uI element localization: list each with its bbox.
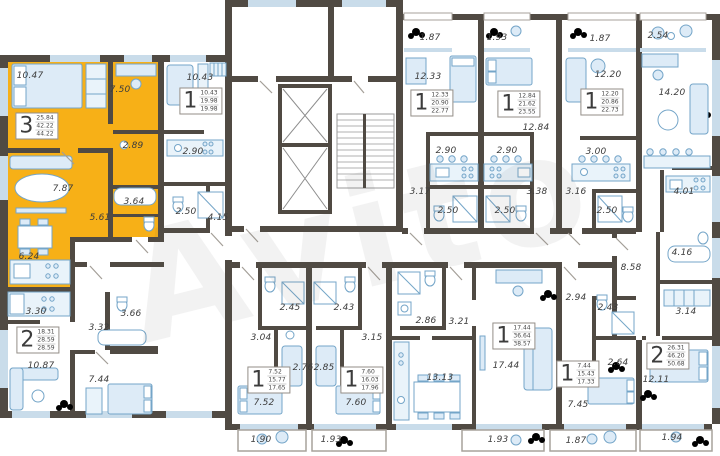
desk-icon [642, 54, 678, 67]
floor-plan: 10.477.502.897.873.645.616.243.303.663.3… [0, 0, 720, 456]
furniture-unit-1-f [314, 277, 380, 447]
washing-machine-icon [398, 302, 411, 315]
sofa-icon [566, 58, 586, 102]
balcony-chair-icon [587, 434, 597, 444]
elevator-icon [283, 148, 327, 209]
sofa-icon [10, 156, 72, 169]
armchair-icon [591, 59, 605, 73]
balcony-chair-icon [604, 431, 616, 443]
wardrobe-icon [86, 64, 106, 108]
furniture-unit-1-c [484, 26, 532, 222]
sofa-icon [167, 65, 193, 105]
furniture-unit-1-e [238, 277, 304, 444]
desk-icon [496, 270, 542, 283]
table-icon [18, 226, 52, 248]
wardrobe-icon [86, 388, 102, 414]
balcony-chair-icon [652, 27, 664, 39]
ac-unit-icon [210, 63, 226, 76]
bathtub-icon [98, 330, 146, 345]
sofa-icon [316, 346, 336, 386]
stairs-icon [337, 114, 394, 188]
desk-icon [116, 64, 156, 76]
furniture-unit-2-corner [640, 25, 711, 447]
sink-icon [120, 141, 128, 149]
elevator-icon [283, 89, 327, 142]
floor-plan-drawing [0, 0, 720, 456]
table-icon [32, 390, 44, 402]
balcony-chair-icon [257, 434, 267, 444]
tv-stand-icon [480, 336, 485, 370]
bathtub-icon [114, 188, 156, 205]
balcony-chair-icon [276, 431, 288, 443]
sofa-icon [282, 346, 302, 386]
wardrobe-icon [664, 290, 710, 306]
tv-stand-icon [16, 208, 66, 213]
furniture-unit-1-b [406, 28, 478, 222]
sofa-icon [690, 84, 708, 134]
bathtub-icon [668, 246, 710, 262]
desk-icon [406, 58, 426, 84]
toilet-icon [698, 232, 708, 244]
rug-icon [658, 110, 678, 130]
balcony-chair-icon [680, 25, 692, 37]
dining-table-icon [15, 174, 69, 202]
sofa-icon [524, 328, 552, 390]
dining-table-icon [414, 382, 460, 412]
balcony-chair-icon [511, 435, 521, 445]
furniture-unit-1-a [167, 64, 223, 218]
elevator-icons [283, 89, 327, 209]
